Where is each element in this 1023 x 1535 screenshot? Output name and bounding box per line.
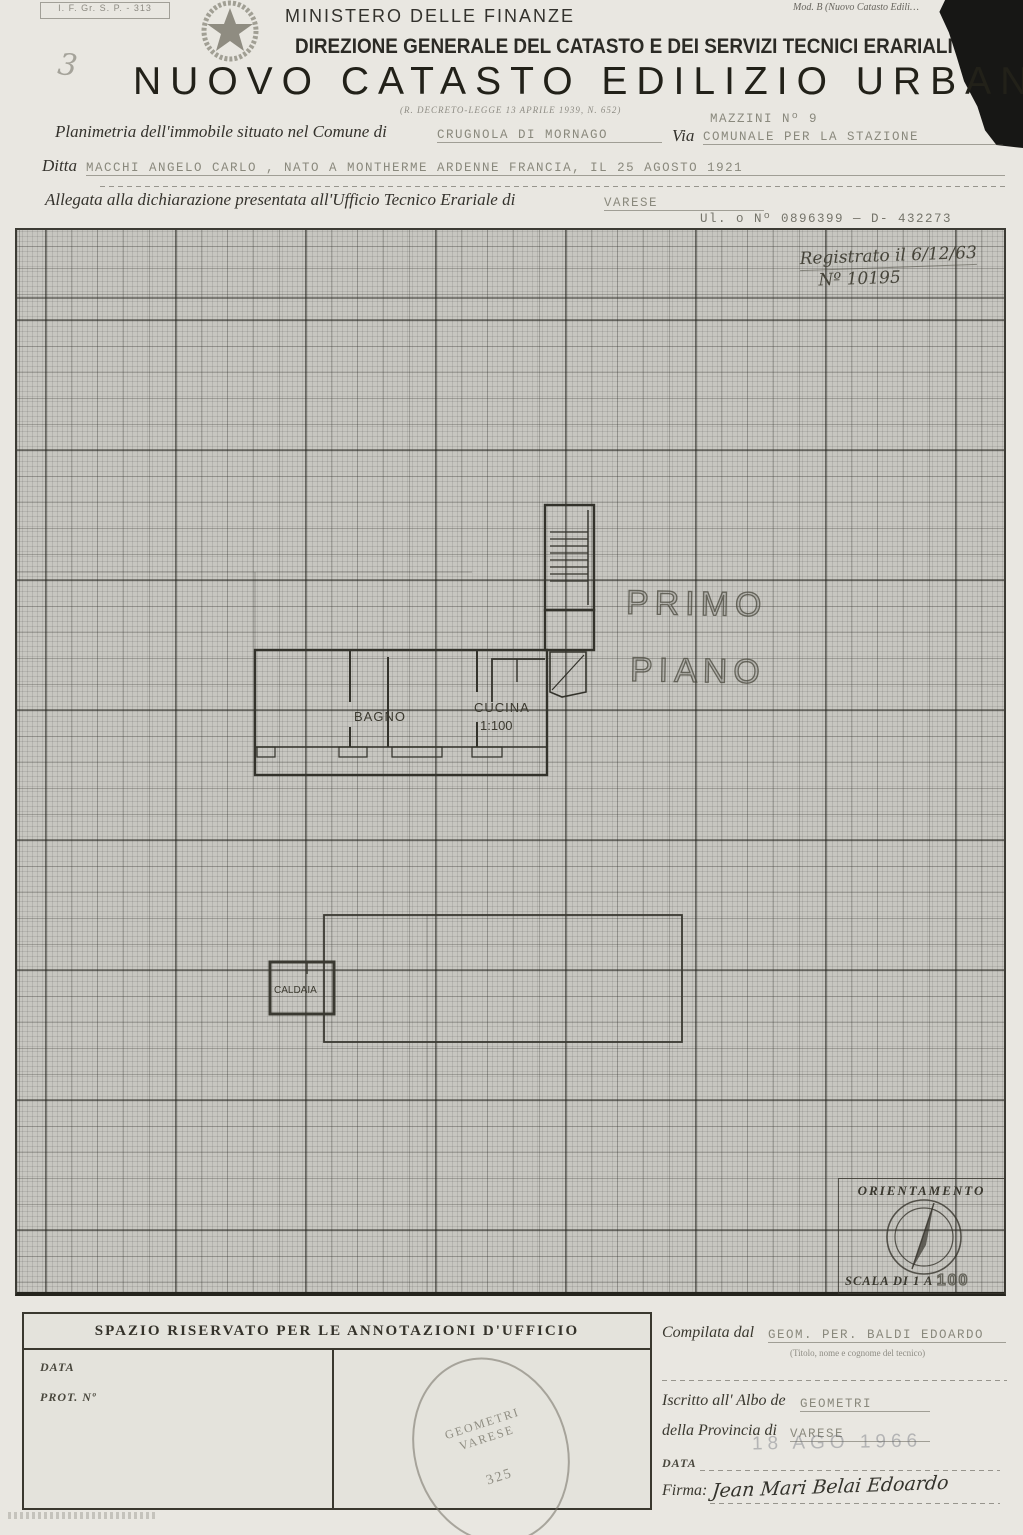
registration-note: Registrato il 6/12/63 Nº 10195 [799, 243, 978, 292]
data-label: DATA [40, 1360, 75, 1375]
fine-print-smudge [8, 1512, 158, 1519]
compilata-note: (Titolo, nome e cognome del tecnico) [790, 1348, 925, 1358]
ground-floor-outline [270, 915, 682, 1042]
orientation-box: ORIENTAMENTO SCALA DI 1 A 100 [838, 1178, 1005, 1294]
planimetria-label: Planimetria dell'immobile situato nel Co… [55, 122, 387, 142]
handwritten-mark: 3 [56, 47, 80, 84]
comune-value: CRUGNOLA DI MORNAGO [437, 128, 662, 143]
firma-label: Firma: [662, 1482, 707, 1500]
stamp-number: 325 [484, 1465, 515, 1489]
blank-rule-2 [662, 1380, 1007, 1381]
floor-plan-drawing: BAGNO CUCINA 1:100 CALDAIA [17, 230, 1004, 1292]
annotations-title: SPAZIO RISERVATO PER LE ANNOTAZIONI D'UF… [24, 1314, 650, 1350]
floor-label-piano: PIANO [630, 651, 766, 692]
window-marks [257, 747, 502, 757]
footer-data-label: DATA [662, 1456, 697, 1471]
first-floor-walls [255, 505, 594, 775]
room-label-caldaia: CALDAIA [274, 985, 317, 996]
compilata-label: Compilata dal [662, 1324, 754, 1342]
ditta-value: MACCHI ANGELO CARLO , NATO A MONTHERME A… [86, 161, 1005, 176]
ufficio-value: VARESE [604, 196, 764, 211]
blank-rule [100, 186, 1005, 187]
via-label: Via [672, 126, 694, 146]
compilata-value: GEOM. PER. BALDI EDOARDO [768, 1328, 1006, 1343]
signature: Jean Mari Belai Edoardo [711, 1472, 950, 1502]
page-title: NUOVO CATASTO EDILIZIO URBANO [133, 60, 1023, 104]
scanned-cadastral-document: I. F. Gr. S. P. - 313 3 Mod. B (Nuovo Ca… [0, 0, 1023, 1535]
room-label-cucina: CUCINA [474, 700, 530, 715]
scala-value: 100 [937, 1272, 970, 1289]
iscritto-value: GEOMETRI [800, 1397, 930, 1412]
graph-paper-sheet: BAGNO CUCINA 1:100 CALDAIA [15, 228, 1006, 1296]
floor-label-primo: PRIMO [626, 584, 768, 625]
room-label-bagno: BAGNO [354, 709, 406, 724]
direction-title: DIREZIONE GENERALE DEL CATASTO E DEI SER… [295, 35, 953, 59]
ministry-title: MINISTERO DELLE FINANZE [285, 6, 575, 27]
data-rule [700, 1470, 1000, 1471]
stair-treads [550, 532, 588, 581]
room-scale-cucina: 1:100 [480, 718, 513, 733]
law-reference: (R. DECRETO-LEGGE 13 APRILE 1939, N. 652… [400, 105, 621, 115]
compass-icon [884, 1197, 964, 1277]
protocol-number: Ul. o Nº 0896399 — D- 432273 [700, 212, 952, 226]
ditta-label: Ditta [42, 156, 77, 176]
state-emblem-icon [197, 0, 263, 62]
office-annotations-box: SPAZIO RISERVATO PER LE ANNOTAZIONI D'UF… [22, 1312, 652, 1510]
allegata-label: Allegata alla dichiarazione presentata a… [45, 190, 515, 210]
scale-line: SCALA DI 1 A 100 [845, 1272, 969, 1290]
box-divider [332, 1348, 334, 1508]
via-note: MAZZINI Nº 9 [710, 112, 818, 126]
mod-b-label: Mod. B (Nuovo Catasto Edili… [793, 2, 943, 13]
office-round-stamp: GEOMETRI VARESE 325 [389, 1337, 594, 1535]
prot-label: PROT. Nº [40, 1390, 97, 1405]
iscritto-label: Iscritto all' Albo de [662, 1392, 786, 1410]
via-value: COMUNALE PER LA STAZIONE [703, 130, 1003, 145]
pencil-lines [17, 572, 472, 1292]
date-stamp: 18 AGO 1966 [752, 1431, 923, 1456]
scala-label: SCALA DI 1 A [845, 1274, 933, 1288]
firma-rule [710, 1503, 1000, 1504]
corner-reference: I. F. Gr. S. P. - 313 [40, 2, 170, 19]
